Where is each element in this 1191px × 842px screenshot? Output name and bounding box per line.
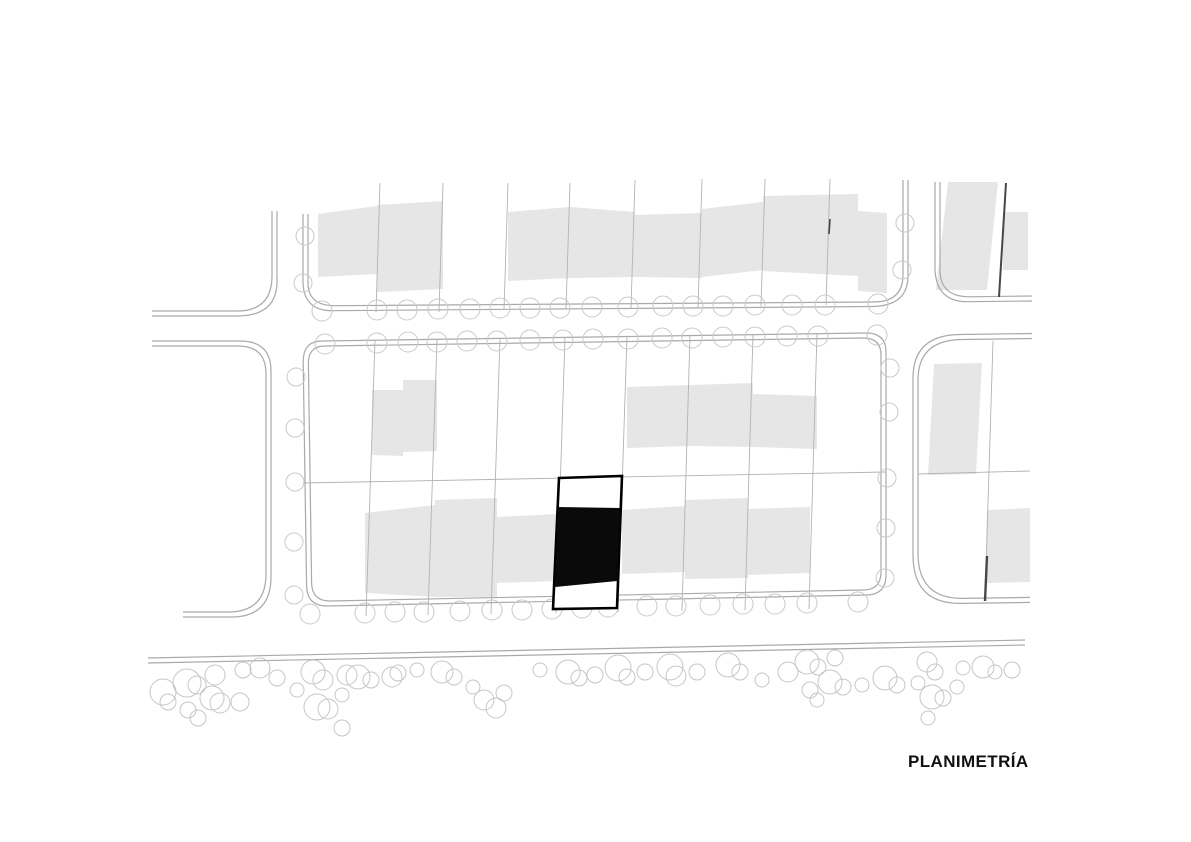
park-tree xyxy=(571,670,587,686)
street-tree xyxy=(398,332,418,352)
street-tree xyxy=(745,327,765,347)
street-tree xyxy=(286,419,304,437)
scatter_trees-layer xyxy=(150,650,1020,736)
street-tree xyxy=(512,600,532,620)
park-tree xyxy=(210,693,230,713)
park-tree xyxy=(235,662,251,678)
building-footprint xyxy=(690,383,753,447)
street-tree xyxy=(683,296,703,316)
park-tree xyxy=(390,665,406,681)
street-tree xyxy=(457,331,477,351)
building-footprint xyxy=(635,213,702,278)
park-tree xyxy=(911,676,925,690)
street-tree xyxy=(520,298,540,318)
park-tree xyxy=(587,667,603,683)
park-tree xyxy=(190,710,206,726)
street-tree xyxy=(896,214,914,232)
building-footprint xyxy=(372,380,437,456)
park-tree xyxy=(188,676,206,694)
dark-lot-line xyxy=(829,219,830,234)
street-tree xyxy=(618,329,638,349)
park-tree xyxy=(988,665,1002,679)
street-tree xyxy=(618,297,638,317)
street-tree xyxy=(428,299,448,319)
park-tree xyxy=(231,693,249,711)
park-tree xyxy=(689,664,705,680)
page: { "page": { "title_label": "PLANIMETRÍA"… xyxy=(0,0,1191,842)
street-south-lower xyxy=(148,645,1025,663)
site-plan-svg xyxy=(0,0,1191,842)
park-tree xyxy=(496,685,512,701)
buildings-layer xyxy=(318,182,1030,597)
park-tree xyxy=(290,683,304,697)
lot-line xyxy=(809,333,817,609)
building-footprint xyxy=(753,394,817,449)
park-tree xyxy=(533,663,547,677)
street-tree xyxy=(880,403,898,421)
street-tree xyxy=(490,298,510,318)
building-footprint xyxy=(748,507,810,575)
park-tree xyxy=(304,694,330,720)
street-nw-corner-outer xyxy=(152,211,272,311)
park-tree xyxy=(150,679,176,705)
park-tree xyxy=(795,650,819,674)
street-tree xyxy=(287,368,305,386)
building-footprint xyxy=(763,194,858,276)
street-tree xyxy=(881,359,899,377)
park-tree xyxy=(605,655,631,681)
street-tree xyxy=(868,294,888,314)
park-tree xyxy=(382,667,402,687)
park-tree xyxy=(917,652,937,672)
street-tree xyxy=(582,297,602,317)
building-footprint xyxy=(318,206,377,277)
park-tree xyxy=(835,679,851,695)
building-footprint xyxy=(627,385,690,448)
street-tree xyxy=(782,295,802,315)
park-tree xyxy=(755,673,769,687)
street-tree xyxy=(414,602,434,622)
park-tree xyxy=(180,702,196,718)
building-footprint xyxy=(570,207,635,278)
street-tree xyxy=(285,533,303,551)
building-footprint xyxy=(377,201,443,292)
building-footprint xyxy=(508,207,570,281)
park-tree xyxy=(827,650,843,666)
park-tree xyxy=(363,672,379,688)
plan-title: PLANIMETRÍA xyxy=(908,752,1029,772)
park-tree xyxy=(818,670,842,694)
street-tree xyxy=(653,296,673,316)
street-west-block-outer xyxy=(152,341,271,617)
park-tree xyxy=(346,665,370,689)
street-tree xyxy=(487,331,507,351)
street-tree xyxy=(745,295,765,315)
park-tree xyxy=(205,665,225,685)
street-tree xyxy=(315,334,335,354)
street-west-block-inner xyxy=(152,346,266,612)
park-tree xyxy=(410,663,424,677)
street-tree xyxy=(777,326,797,346)
building-footprint xyxy=(685,498,748,579)
park-tree xyxy=(446,669,462,685)
street-south-upper xyxy=(148,640,1025,658)
building-footprint xyxy=(985,508,1030,583)
highlight-layer xyxy=(553,476,622,609)
dark-lot-line xyxy=(985,556,987,601)
park-tree xyxy=(950,680,964,694)
park-tree xyxy=(637,664,653,680)
park-tree xyxy=(269,670,285,686)
street-nw-corner-inner xyxy=(152,211,277,316)
street-tree xyxy=(520,330,540,350)
building-footprint xyxy=(702,202,763,277)
park-tree xyxy=(855,678,869,692)
park-tree xyxy=(334,720,350,736)
building-footprint xyxy=(936,182,998,290)
building-footprint xyxy=(622,506,685,574)
street-tree xyxy=(300,604,320,624)
street-tree xyxy=(713,296,733,316)
building-footprint xyxy=(858,211,887,293)
street-tree xyxy=(296,227,314,245)
park-tree xyxy=(200,686,224,710)
park-tree xyxy=(1004,662,1020,678)
street-tree xyxy=(550,298,570,318)
street-tree xyxy=(355,603,375,623)
highlighted-building xyxy=(555,507,620,587)
park-tree xyxy=(160,694,176,710)
lot-line xyxy=(504,183,508,310)
park-tree xyxy=(318,699,338,719)
street-tree xyxy=(652,328,672,348)
street-tree xyxy=(285,586,303,604)
street-tree xyxy=(713,327,733,347)
park-tree xyxy=(173,669,201,697)
building-footprint xyxy=(1003,212,1028,270)
street-tree xyxy=(583,329,603,349)
street-tree xyxy=(682,328,702,348)
park-tree xyxy=(921,711,935,725)
park-tree xyxy=(810,693,824,707)
park-tree xyxy=(802,682,818,698)
park-tree xyxy=(313,670,333,690)
building-footprint xyxy=(497,514,557,583)
street-tree xyxy=(286,473,304,491)
park-tree xyxy=(666,666,686,686)
building-footprint xyxy=(928,363,982,475)
street-tree xyxy=(553,330,573,350)
park-tree xyxy=(335,688,349,702)
building-footprint xyxy=(365,505,435,597)
building-footprint xyxy=(435,498,497,597)
park-tree xyxy=(431,661,453,683)
park-tree xyxy=(956,661,970,675)
street-tree xyxy=(808,326,828,346)
street-tree xyxy=(815,295,835,315)
park-tree xyxy=(474,690,494,710)
park-tree xyxy=(556,660,580,684)
site-plan-sheet: PLANIMETRÍA xyxy=(0,0,1191,842)
street-tree xyxy=(450,601,470,621)
street-tree xyxy=(367,333,387,353)
